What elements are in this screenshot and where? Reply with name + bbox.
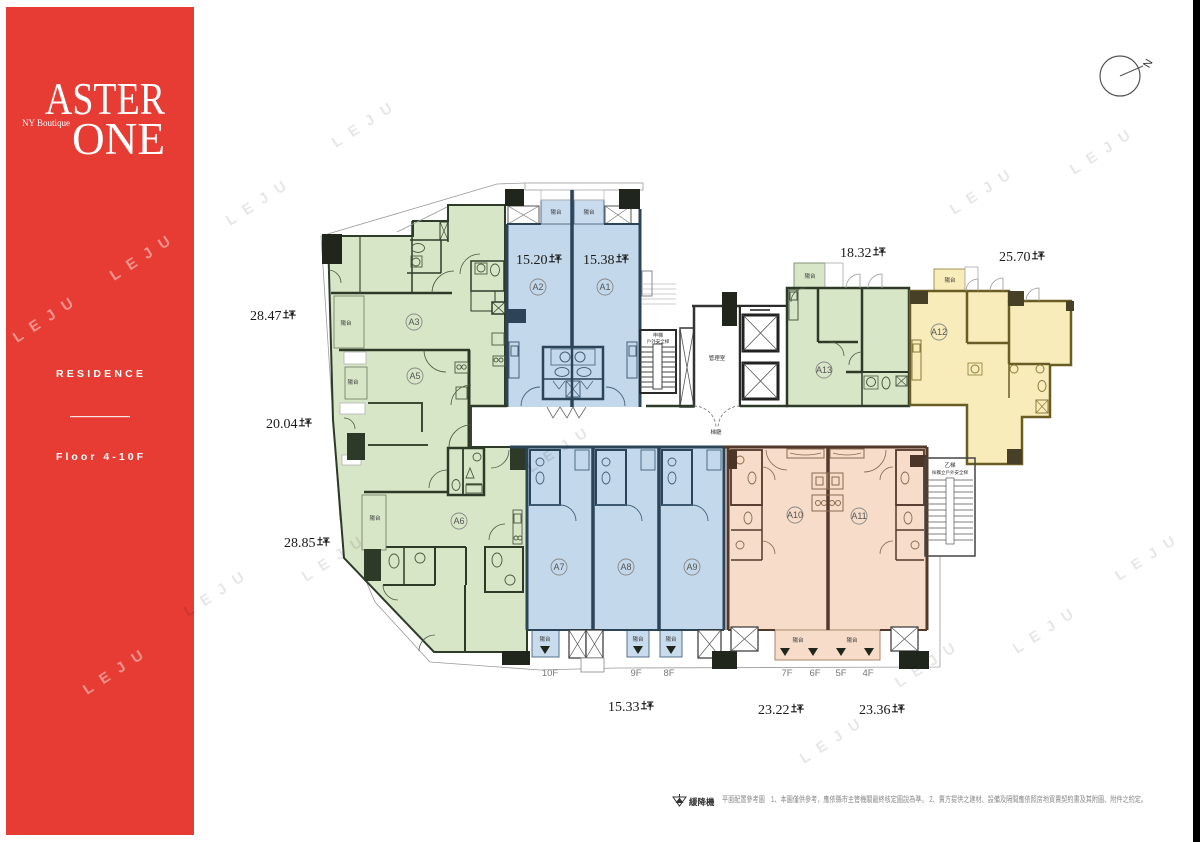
svg-text:A11: A11	[851, 511, 866, 521]
svg-text:申梯: 申梯	[653, 332, 663, 339]
svg-text:NY Boutique: NY Boutique	[22, 119, 70, 129]
svg-text:管理室: 管理室	[709, 354, 726, 362]
svg-text:A6: A6	[453, 516, 464, 526]
svg-text:7F: 7F	[781, 668, 792, 679]
svg-text:9F: 9F	[630, 668, 641, 679]
svg-text:18.32: 18.32	[840, 246, 872, 261]
svg-text:28.47: 28.47	[250, 309, 282, 324]
svg-text:梯廳: 梯廳	[710, 428, 722, 436]
svg-text:陽台: 陽台	[792, 636, 804, 644]
svg-text:23.22: 23.22	[758, 703, 790, 718]
svg-text:A9: A9	[686, 562, 697, 572]
svg-text:10F: 10F	[542, 668, 559, 679]
svg-text:28.85: 28.85	[284, 536, 316, 551]
svg-text:緩降機: 緩降機	[689, 797, 715, 807]
svg-text:陽台: 陽台	[347, 378, 359, 386]
svg-text:6F: 6F	[809, 668, 820, 679]
svg-text:4F: 4F	[862, 668, 873, 679]
svg-text:A1: A1	[599, 282, 610, 292]
svg-text:陽台: 陽台	[804, 272, 816, 280]
svg-text:戶外安全梯: 戶外安全梯	[647, 338, 670, 345]
svg-text:5F: 5F	[835, 668, 846, 679]
svg-text:8F: 8F	[663, 668, 674, 679]
svg-text:陽台: 陽台	[539, 635, 551, 643]
svg-text:乙梯: 乙梯	[944, 461, 956, 469]
svg-text:陽台: 陽台	[369, 514, 381, 522]
svg-text:陽台: 陽台	[550, 208, 562, 216]
svg-text:陽台: 陽台	[340, 319, 352, 327]
svg-text:A13: A13	[816, 365, 832, 375]
svg-text:陽台: 陽台	[632, 635, 644, 643]
svg-text:RESIDENCE: RESIDENCE	[56, 368, 143, 380]
svg-text:A3: A3	[408, 317, 419, 327]
svg-text:陽台: 陽台	[583, 208, 595, 216]
svg-text:A5: A5	[409, 371, 420, 381]
svg-text:A10: A10	[787, 510, 803, 520]
svg-text:採獨立戶外安全梯: 採獨立戶外安全梯	[932, 469, 968, 476]
svg-text:ONE: ONE	[72, 114, 165, 164]
svg-text:15.33: 15.33	[608, 700, 640, 715]
svg-text:A7: A7	[553, 562, 564, 572]
svg-text:A12: A12	[931, 327, 947, 337]
svg-text:A2: A2	[532, 282, 543, 292]
svg-text:A8: A8	[620, 562, 631, 572]
svg-text:20.04: 20.04	[266, 417, 298, 432]
svg-text:15.38: 15.38	[583, 253, 615, 268]
svg-text:15.20: 15.20	[516, 253, 548, 268]
svg-text:平面配置參考圖 1、本圖僅供參考，應依縣市主管機關最終核定圖: 平面配置參考圖 1、本圖僅供參考，應依縣市主管機關最終核定圖說為準。 2、賣方提…	[722, 794, 1147, 804]
svg-text:陽台: 陽台	[665, 635, 677, 643]
svg-text:陽台: 陽台	[846, 636, 858, 644]
svg-text:25.70: 25.70	[999, 250, 1031, 265]
svg-text:陽台: 陽台	[944, 276, 956, 284]
